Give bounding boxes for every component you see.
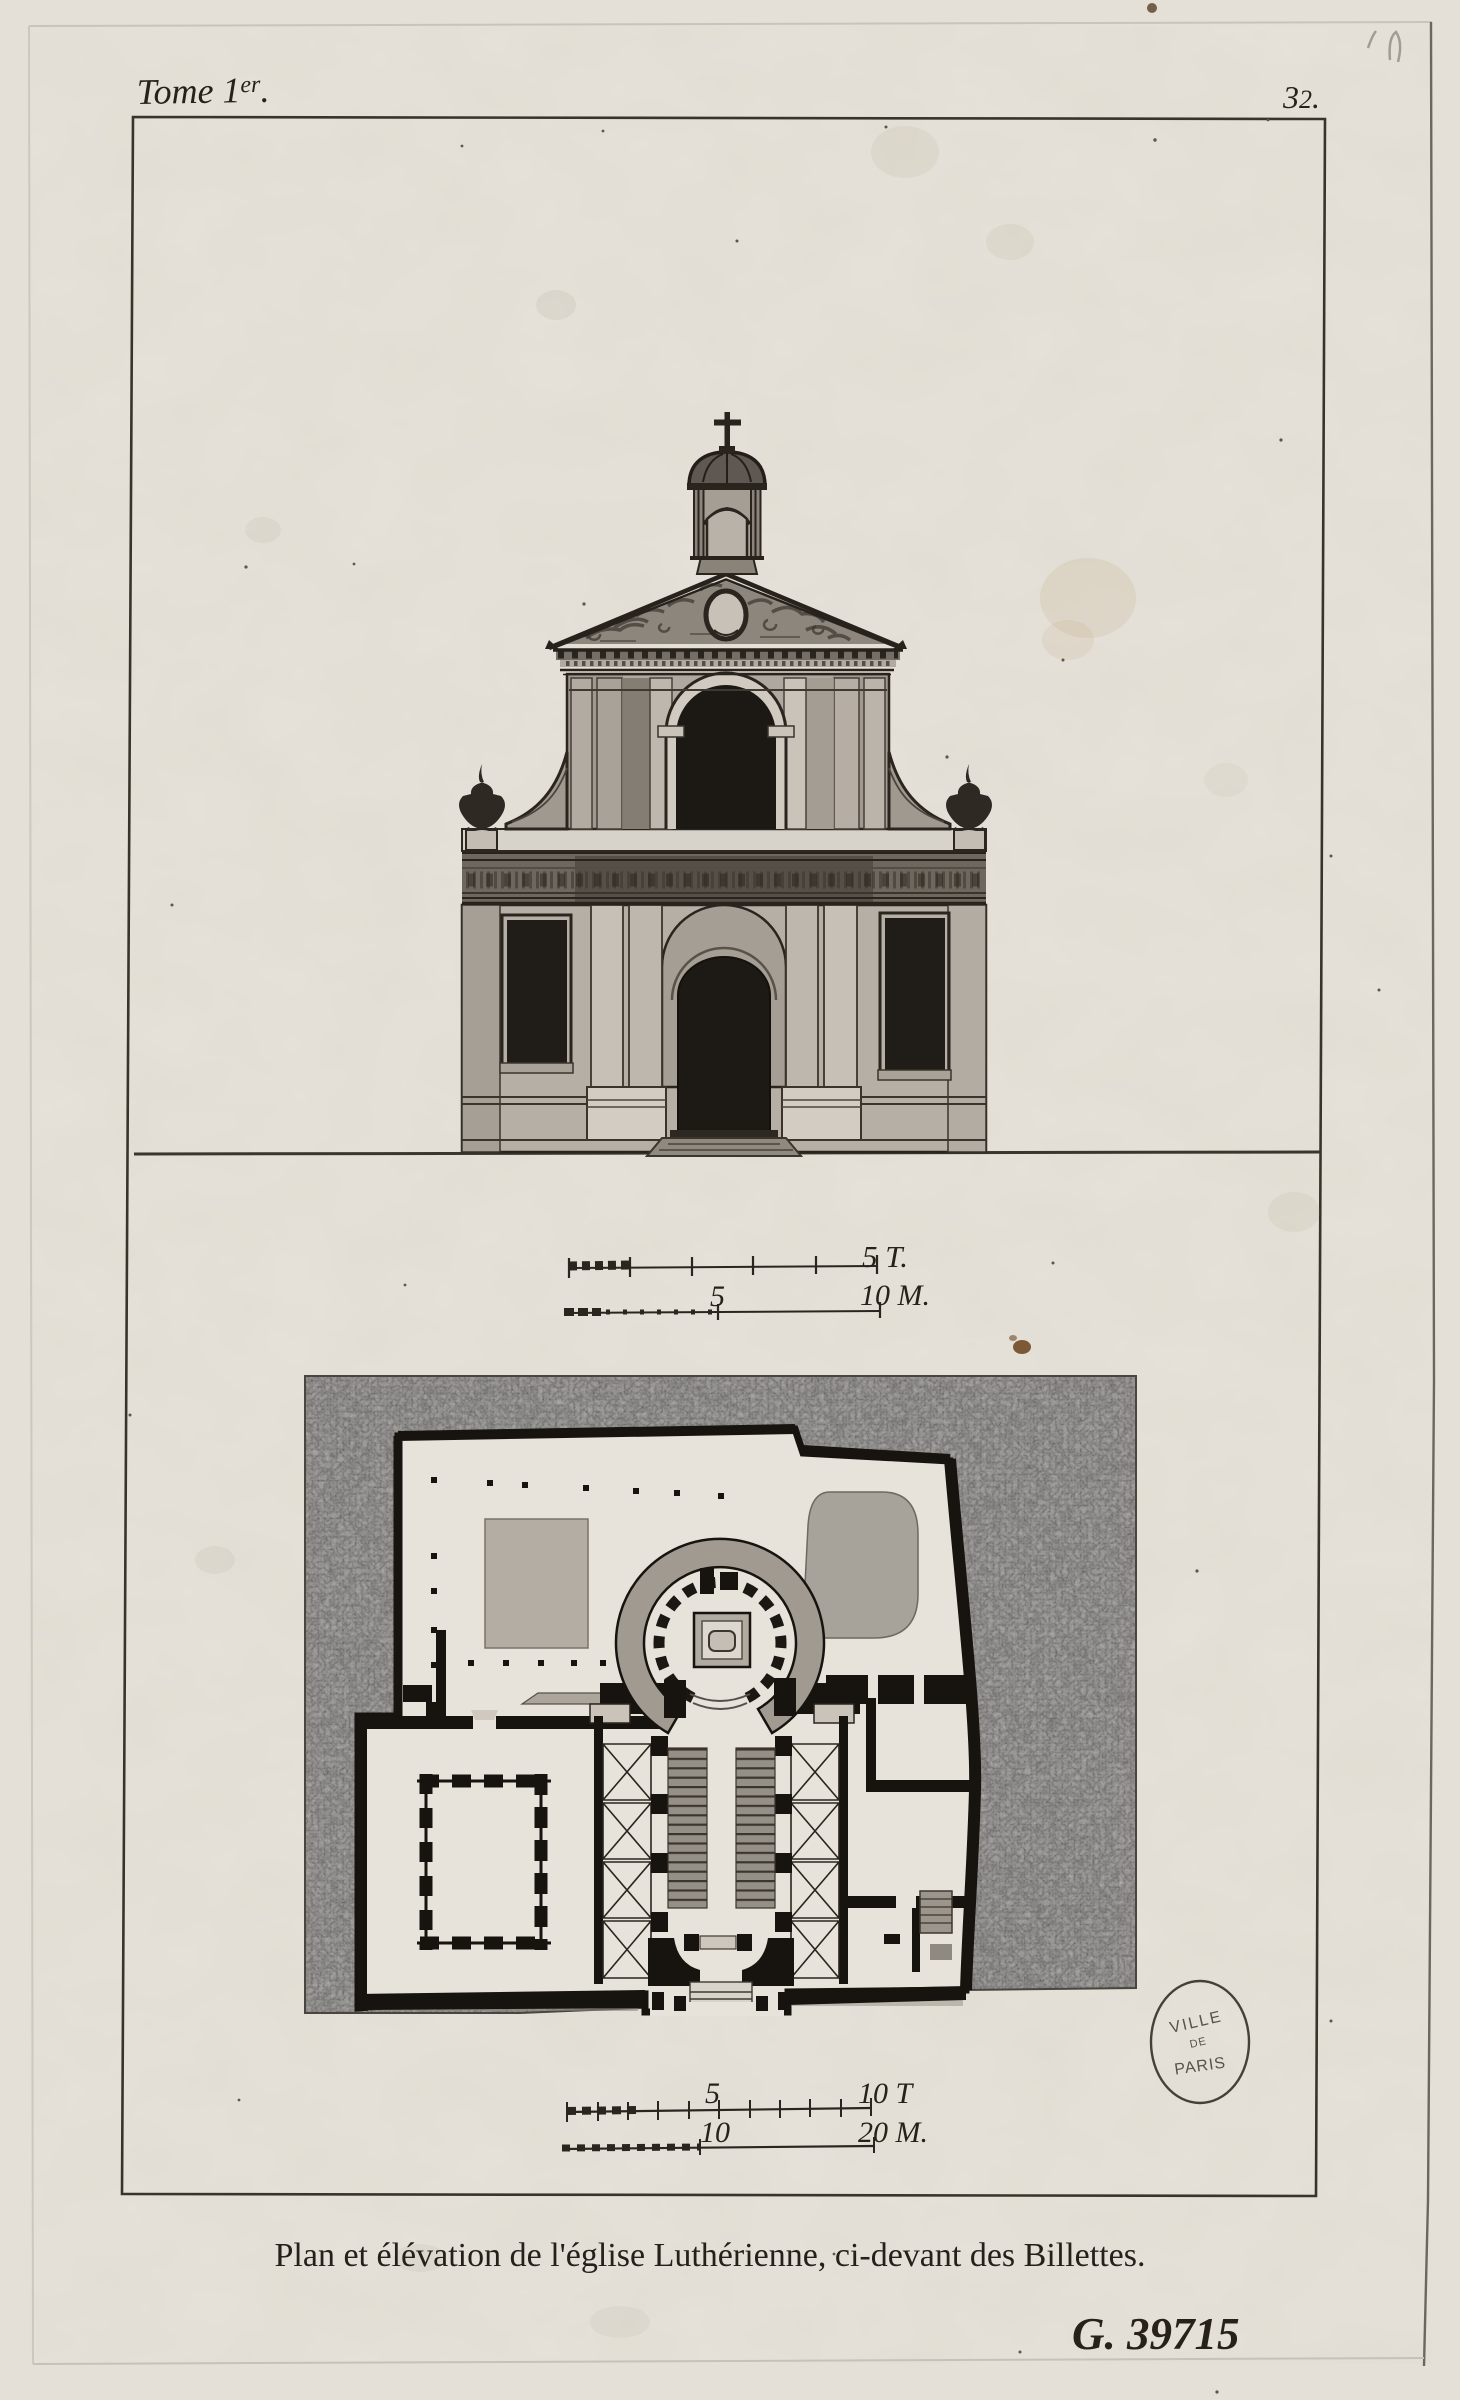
svg-text:5: 5 [705, 2077, 720, 2110]
svg-text:32.: 32. [1282, 79, 1320, 115]
svg-text:5: 5 [710, 1280, 725, 1313]
svg-text:20 M.: 20 M. [858, 2116, 928, 2149]
svg-text:10 T: 10 T [858, 2077, 915, 2110]
svg-text:5 T.: 5 T. [862, 1239, 908, 1274]
svg-text:Plan et élévation de l'église: Plan et élévation de l'église Luthérienn… [275, 2237, 1146, 2274]
svg-text:G. 39715: G. 39715 [1072, 2309, 1240, 2359]
svg-text:10 M.: 10 M. [860, 1279, 930, 1312]
svg-text:10: 10 [700, 2116, 730, 2149]
